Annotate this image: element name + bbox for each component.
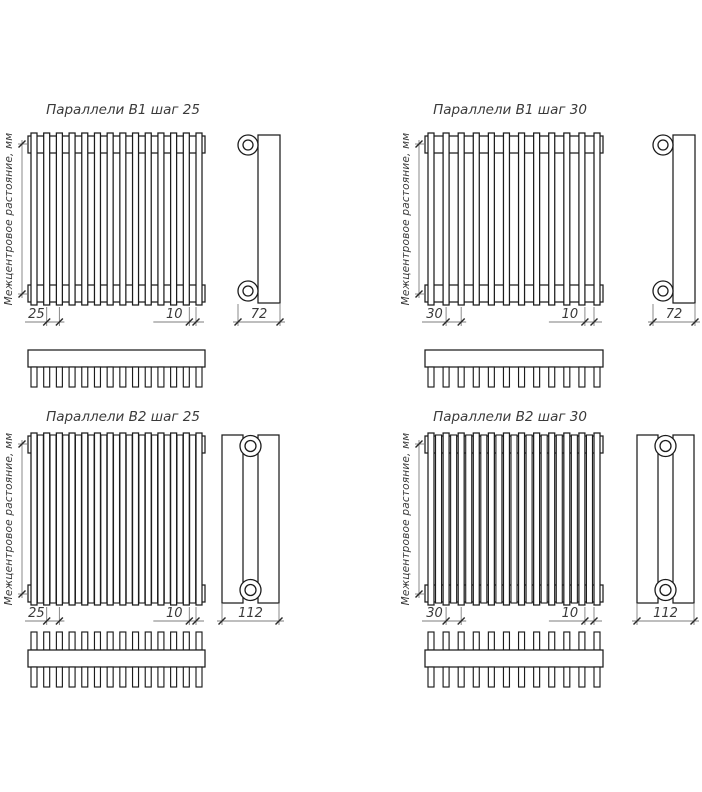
svg-text:10: 10: [562, 307, 579, 322]
step-dimension-value: 30: [426, 307, 443, 322]
svg-text:Параллели В1 шаг 25: Параллели В1 шаг 25: [46, 102, 200, 118]
svg-text:10: 10: [166, 307, 183, 322]
svg-text:Межцентровое растояние, мм: Межцентровое растояние, мм: [3, 133, 15, 306]
front-view: [425, 433, 603, 605]
diagram-title: Параллели В1 шаг 25: [46, 102, 200, 118]
svg-text:Межцентровое растояние, мм: Межцентровое растояние, мм: [400, 433, 412, 606]
gap-dimension-value: 10: [166, 307, 183, 322]
svg-text:112: 112: [653, 606, 678, 621]
svg-text:30: 30: [426, 307, 443, 322]
svg-text:10: 10: [562, 606, 579, 621]
step-dimension-value: 25: [28, 307, 45, 322]
center-distance-label: Межцентровое растояние, мм: [400, 433, 412, 606]
technical-drawing-page: Параллели В1 шаг 25Межцентровое растояни…: [0, 0, 702, 792]
depth-dimension-value: 72: [666, 307, 683, 322]
svg-text:10: 10: [166, 606, 183, 621]
svg-text:25: 25: [28, 307, 45, 322]
diagram-title: Параллели В1 шаг 30: [433, 102, 587, 118]
svg-text:72: 72: [251, 307, 268, 322]
radiator-views-drawing: Параллели В1 шаг 25Межцентровое растояни…: [0, 0, 702, 792]
depth-dimension-value: 72: [251, 307, 268, 322]
step-dimension-value: 25: [28, 606, 45, 621]
front-view: [28, 433, 205, 605]
svg-text:Параллели В2 шаг 30: Параллели В2 шаг 30: [433, 409, 587, 425]
center-distance-label: Межцентровое растояние, мм: [3, 133, 15, 306]
diagram-title: Параллели В2 шаг 25: [46, 409, 200, 425]
step-dimension-value: 30: [426, 606, 443, 621]
gap-dimension-value: 10: [562, 307, 579, 322]
svg-text:Параллели В2 шаг 25: Параллели В2 шаг 25: [46, 409, 200, 425]
svg-text:Межцентровое растояние, мм: Межцентровое растояние, мм: [3, 433, 15, 606]
gap-dimension-value: 10: [562, 606, 579, 621]
svg-text:25: 25: [28, 606, 45, 621]
svg-text:112: 112: [238, 606, 263, 621]
center-distance-label: Межцентровое растояние, мм: [400, 133, 412, 306]
depth-dimension-value: 112: [653, 606, 678, 621]
svg-text:Параллели В1 шаг 30: Параллели В1 шаг 30: [433, 102, 587, 118]
center-distance-label: Межцентровое растояние, мм: [3, 433, 15, 606]
svg-text:Межцентровое растояние, мм: Межцентровое растояние, мм: [400, 133, 412, 306]
svg-text:30: 30: [426, 606, 443, 621]
depth-dimension-value: 112: [238, 606, 263, 621]
diagram-title: Параллели В2 шаг 30: [433, 409, 587, 425]
gap-dimension-value: 10: [166, 606, 183, 621]
svg-text:72: 72: [666, 307, 683, 322]
